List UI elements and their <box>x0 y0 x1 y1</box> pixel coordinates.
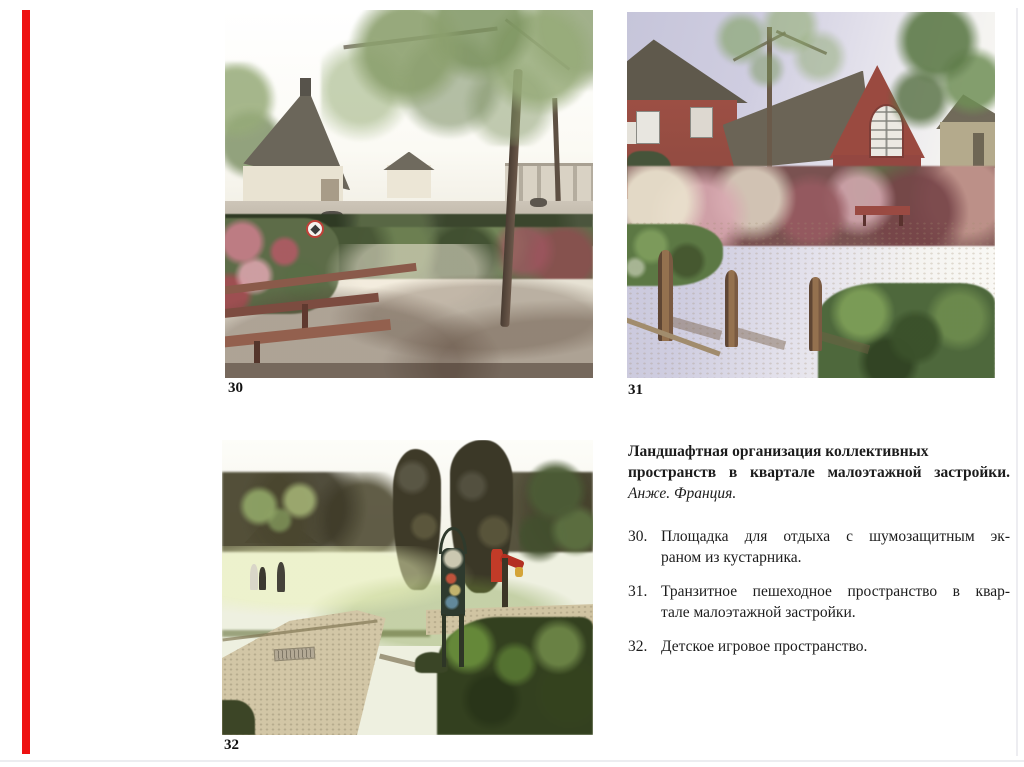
photo30-chimney <box>300 78 311 96</box>
photo31-bollard-1 <box>658 250 673 342</box>
photo32-kid-2 <box>259 567 266 591</box>
photo31-window-1 <box>636 111 660 144</box>
caption-item-31-line2: тале малоэтажной застройки. <box>661 602 1010 623</box>
caption-item-30-line2: раном из кустарника. <box>661 547 1010 568</box>
photo31-balcony-rail <box>627 122 636 144</box>
caption-item-30-text: Площадка для отдыха с шумозащитным эк- р… <box>661 526 1010 568</box>
bottom-rule-line <box>0 760 1024 762</box>
photo30-ground-bottom-shadow <box>225 363 593 378</box>
caption-item-32-line1: Детское игровое пространство. <box>661 636 1010 657</box>
photo30-distant-houses <box>505 163 593 205</box>
caption-title: Ландшафтная организация коллективных про… <box>628 441 1010 483</box>
photo32-playground-accent <box>515 567 523 577</box>
photo31-shrubs-bottom-right <box>818 283 995 378</box>
photo31-bollard-2 <box>725 270 739 347</box>
book-page: 30 31 <box>0 0 1024 767</box>
caption-item-31-line1: Транзитное пешеходное пространство в ква… <box>661 581 1010 602</box>
photo32-light-trees <box>229 481 329 537</box>
figure-label-30: 30 <box>228 380 243 397</box>
photo32-kid-3 <box>277 562 285 592</box>
photo31-bench-leg-b <box>899 215 903 226</box>
photo31-right-canopy <box>885 12 995 162</box>
caption-title-line2: пространств в квартале малоэтажной застр… <box>628 462 1010 483</box>
photo32-sign-pole-right <box>459 614 463 667</box>
caption-item-31: 31. Транзитное пешеходное пространство в… <box>628 581 1010 623</box>
caption-item-31-text: Транзитное пешеходное пространство в ква… <box>661 581 1010 623</box>
photo30-canopy <box>321 10 593 146</box>
page-edge-line <box>1016 8 1018 756</box>
photo-31-pedestrian-space <box>627 12 995 378</box>
photo31-bollard-3 <box>809 277 822 350</box>
caption-item-30-line1: Площадка для отдыха с шумозащитным эк- <box>661 526 1010 547</box>
caption-item-32-number: 32. <box>628 636 661 657</box>
caption-block: Ландшафтная организация коллективных про… <box>628 441 1010 670</box>
photo31-sparse-leaves <box>693 12 855 125</box>
caption-item-31-number: 31. <box>628 581 661 623</box>
caption-title-line1: Ландшафтная организация коллективных <box>628 441 1010 462</box>
caption-item-30-number: 30. <box>628 526 661 568</box>
figure-label-31: 31 <box>628 382 643 399</box>
caption-subtitle: Анже. Франция. <box>628 483 1010 504</box>
figure-label-32: 32 <box>224 737 239 754</box>
photo32-sign-panel <box>441 548 465 616</box>
photo32-kid-1 <box>250 564 258 591</box>
red-accent-bar <box>22 10 30 754</box>
photo32-sign-pole-left <box>442 614 446 667</box>
caption-item-32: 32. Детское игровое пространство. <box>628 636 1010 657</box>
photo-32-play-space <box>222 440 593 735</box>
caption-item-30: 30. Площадка для отдыха с шумозащитным э… <box>628 526 1010 568</box>
photo31-bench-leg-a <box>863 215 867 226</box>
photo-30-rest-area <box>225 10 593 378</box>
photo30-bench-leg <box>254 341 259 363</box>
caption-item-32-text: Детское игровое пространство. <box>661 636 1010 657</box>
photo30-car-right <box>530 198 547 208</box>
